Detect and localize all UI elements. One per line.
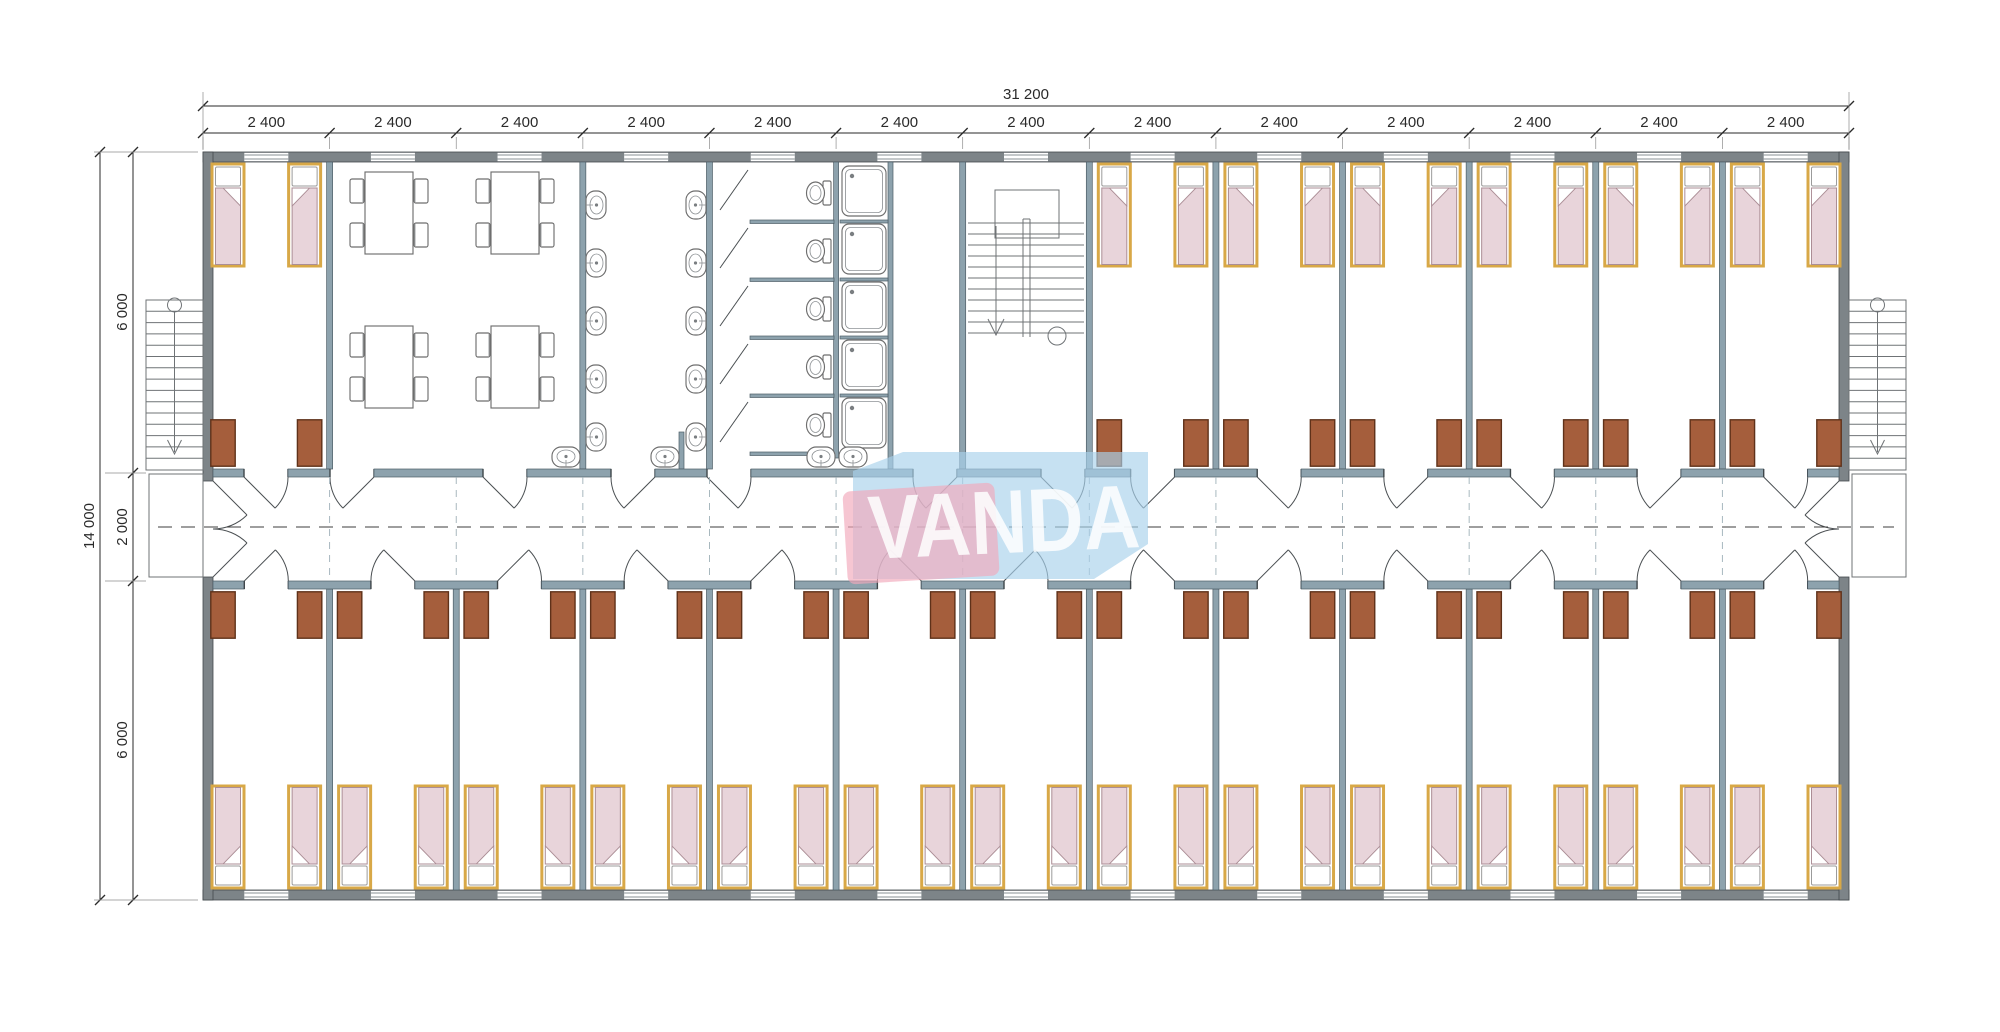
dimension-label: 2 400 [248, 114, 286, 131]
door-swing [1637, 477, 1681, 508]
wardrobe-icon [1350, 420, 1374, 466]
wardrobe-icon [970, 592, 994, 638]
window-icon [1637, 891, 1681, 899]
toilet-icon [807, 239, 832, 263]
wardrobe-icon [1690, 420, 1714, 466]
wardrobe-icon [1604, 592, 1628, 638]
wardrobe-icon [297, 420, 321, 466]
bed-icon [718, 786, 750, 888]
dimension-label: 2 400 [627, 114, 665, 131]
wardrobe-icon [1730, 420, 1754, 466]
wardrobe-icon [1477, 420, 1501, 466]
bed-icon [1478, 786, 1510, 888]
door-swing [371, 550, 415, 581]
floor-plan-page: 31 2002 4002 4002 4002 4002 4002 4002 40… [0, 0, 2000, 1032]
wardrobe-icon [1564, 592, 1588, 638]
dimension-label: 2 400 [1387, 114, 1425, 131]
shower-icon [842, 166, 886, 216]
sink-icon [586, 307, 606, 335]
shower-icon [842, 340, 886, 390]
door-swing [244, 550, 288, 581]
door-swing [611, 477, 655, 508]
window-icon [751, 891, 795, 899]
bed-icon [1098, 164, 1130, 266]
window-icon [1004, 891, 1048, 899]
dimension-label: 2 400 [374, 114, 412, 131]
bed-icon [845, 786, 877, 888]
bed-icon [1478, 164, 1510, 266]
floor-plan-canvas: 31 2002 4002 4002 4002 4002 4002 4002 40… [0, 0, 2000, 1032]
toilet-icon [807, 181, 832, 205]
wardrobe-icon [1604, 420, 1628, 466]
toilet-icon [807, 297, 832, 321]
bed-icon [1302, 164, 1334, 266]
bed-icon [465, 786, 497, 888]
dimension-label: 2 400 [1767, 114, 1805, 131]
window-icon [371, 153, 415, 161]
dimension-label: 2 400 [1134, 114, 1172, 131]
window-icon [1764, 153, 1808, 161]
dimension-label: 2 400 [754, 114, 792, 131]
window-icon [1131, 153, 1175, 161]
sink-icon [586, 249, 606, 277]
bed-icon [1302, 786, 1334, 888]
window-icon [498, 153, 542, 161]
dimension-label: 6 000 [114, 721, 131, 759]
bed-icon [1555, 786, 1587, 888]
window-icon [1257, 153, 1301, 161]
internal-staircase [968, 190, 1084, 345]
bed-icon [972, 786, 1004, 888]
sink-icon [686, 423, 706, 451]
bed-icon [1808, 164, 1840, 266]
end-double-door [1805, 481, 1839, 577]
wardrobe-icon [1564, 420, 1588, 466]
bed-icon [289, 786, 321, 888]
washroom [552, 191, 706, 467]
door-swing [1764, 550, 1808, 581]
window-icon [1637, 153, 1681, 161]
sink-icon [807, 447, 835, 467]
door-swing [707, 477, 751, 508]
wardrobe-icon [551, 592, 575, 638]
wardrobe-icon [1224, 420, 1248, 466]
sink-icon [586, 191, 606, 219]
door-swing [751, 550, 795, 581]
window-icon [1510, 153, 1554, 161]
door-swing [1764, 477, 1808, 508]
wardrobe-icon [930, 592, 954, 638]
wardrobe-icon [297, 592, 321, 638]
wardrobe-icon [1310, 420, 1334, 466]
dimension-label: 2 400 [501, 114, 539, 131]
shower-icon [842, 224, 886, 274]
wardrobe-icon [1690, 592, 1714, 638]
logo-text: VANDA [866, 467, 1142, 579]
dining-table-icon [350, 172, 428, 254]
door-swing [1384, 477, 1428, 508]
door-swing [1510, 477, 1554, 508]
wardrobe-icon [1057, 592, 1081, 638]
dimension-label: 2 400 [1514, 114, 1552, 131]
sink-icon [686, 191, 706, 219]
dimension-label: 14 000 [81, 503, 98, 549]
bed-icon [1555, 164, 1587, 266]
exterior-staircase [146, 298, 203, 577]
bed-icon [1808, 786, 1840, 888]
dimension-label: 2 400 [881, 114, 919, 131]
toilet-shower-room [720, 166, 888, 467]
wardrobe-icon [717, 592, 741, 638]
wardrobe-icon [677, 592, 701, 638]
dining-table-icon [476, 172, 554, 254]
end-double-door [213, 481, 247, 577]
wardrobe-icon [1817, 420, 1841, 466]
bed-icon [339, 786, 371, 888]
window-icon [1510, 891, 1554, 899]
sink-icon [686, 307, 706, 335]
wardrobe-icon [464, 592, 488, 638]
dimension-label: 2 400 [1007, 114, 1045, 131]
wardrobe-icon [1310, 592, 1334, 638]
bed-icon [212, 786, 244, 888]
door-swing [330, 477, 374, 508]
bed-icon [795, 786, 827, 888]
logo-watermark: VANDA [842, 452, 1148, 585]
wardrobe-icon [1184, 592, 1208, 638]
bed-icon [1428, 164, 1460, 266]
bed-icon [1681, 786, 1713, 888]
window-icon [877, 153, 921, 161]
bed-icon [1681, 164, 1713, 266]
wardrobe-icon [1817, 592, 1841, 638]
bed-icon [1731, 786, 1763, 888]
bed-icon [1098, 786, 1130, 888]
dimension-label: 31 200 [1003, 86, 1049, 103]
wardrobe-icon [1184, 420, 1208, 466]
bed-icon [1605, 164, 1637, 266]
exterior-staircase [1849, 298, 1906, 577]
bed-icon [1352, 164, 1384, 266]
bed-icon [212, 164, 244, 266]
wardrobe-icon [1477, 592, 1501, 638]
door-swing [244, 477, 288, 508]
door-swing [498, 550, 542, 581]
toilet-icon [807, 355, 832, 379]
wardrobe-icon [844, 592, 868, 638]
dimension-label: 2 400 [1260, 114, 1298, 131]
sink-icon [651, 447, 679, 467]
dimension-label: 6 000 [114, 293, 131, 331]
wardrobe-icon [1730, 592, 1754, 638]
door-swing [483, 477, 527, 508]
window-icon [1257, 891, 1301, 899]
wardrobe-icon [1224, 592, 1248, 638]
bed-icon [592, 786, 624, 888]
bed-icon [542, 786, 574, 888]
sink-icon [586, 423, 606, 451]
dining-table-icon [350, 326, 428, 408]
window-icon [371, 891, 415, 899]
bed-icon [1048, 786, 1080, 888]
door-swing [1510, 550, 1554, 581]
bed-icon [1175, 164, 1207, 266]
dimension-label: 2 400 [1640, 114, 1678, 131]
dimension-label: 2 000 [114, 508, 131, 546]
bed-icon [1352, 786, 1384, 888]
window-icon [498, 891, 542, 899]
wardrobe-icon [1437, 592, 1461, 638]
wardrobe-icon [804, 592, 828, 638]
shower-icon [842, 398, 886, 448]
door-swing [1384, 550, 1428, 581]
toilet-icon [807, 413, 832, 437]
window-icon [244, 153, 288, 161]
sink-icon [686, 249, 706, 277]
window-icon [1131, 891, 1175, 899]
sink-icon [552, 447, 580, 467]
shower-icon [842, 282, 886, 332]
bed-icon [1175, 786, 1207, 888]
bed-icon [1605, 786, 1637, 888]
wardrobe-icon [591, 592, 615, 638]
sink-icon [686, 365, 706, 393]
dining-room [350, 172, 554, 408]
window-icon [751, 153, 795, 161]
window-icon [244, 891, 288, 899]
bed-icon [922, 786, 954, 888]
window-icon [1004, 153, 1048, 161]
bed-icon [1225, 786, 1257, 888]
sink-icon [586, 365, 606, 393]
bed-icon [1731, 164, 1763, 266]
sink-icon [839, 447, 867, 467]
wardrobe-icon [1350, 592, 1374, 638]
window-icon [1764, 891, 1808, 899]
bed-icon [415, 786, 447, 888]
bed-icon [1428, 786, 1460, 888]
bed-icon [668, 786, 700, 888]
wardrobe-icon [211, 592, 235, 638]
window-icon [624, 891, 668, 899]
window-icon [624, 153, 668, 161]
dining-table-icon [476, 326, 554, 408]
window-icon [1384, 891, 1428, 899]
door-swing [1257, 550, 1301, 581]
wardrobe-icon [211, 420, 235, 466]
wardrobe-icon [424, 592, 448, 638]
window-icon [877, 891, 921, 899]
window-icon [1384, 153, 1428, 161]
door-swing [1257, 477, 1301, 508]
door-swing [624, 550, 668, 581]
wardrobe-icon [337, 592, 361, 638]
bed-icon [289, 164, 321, 266]
bed-icon [1225, 164, 1257, 266]
door-swing [1637, 550, 1681, 581]
wardrobe-icon [1437, 420, 1461, 466]
wardrobe-icon [1097, 592, 1121, 638]
